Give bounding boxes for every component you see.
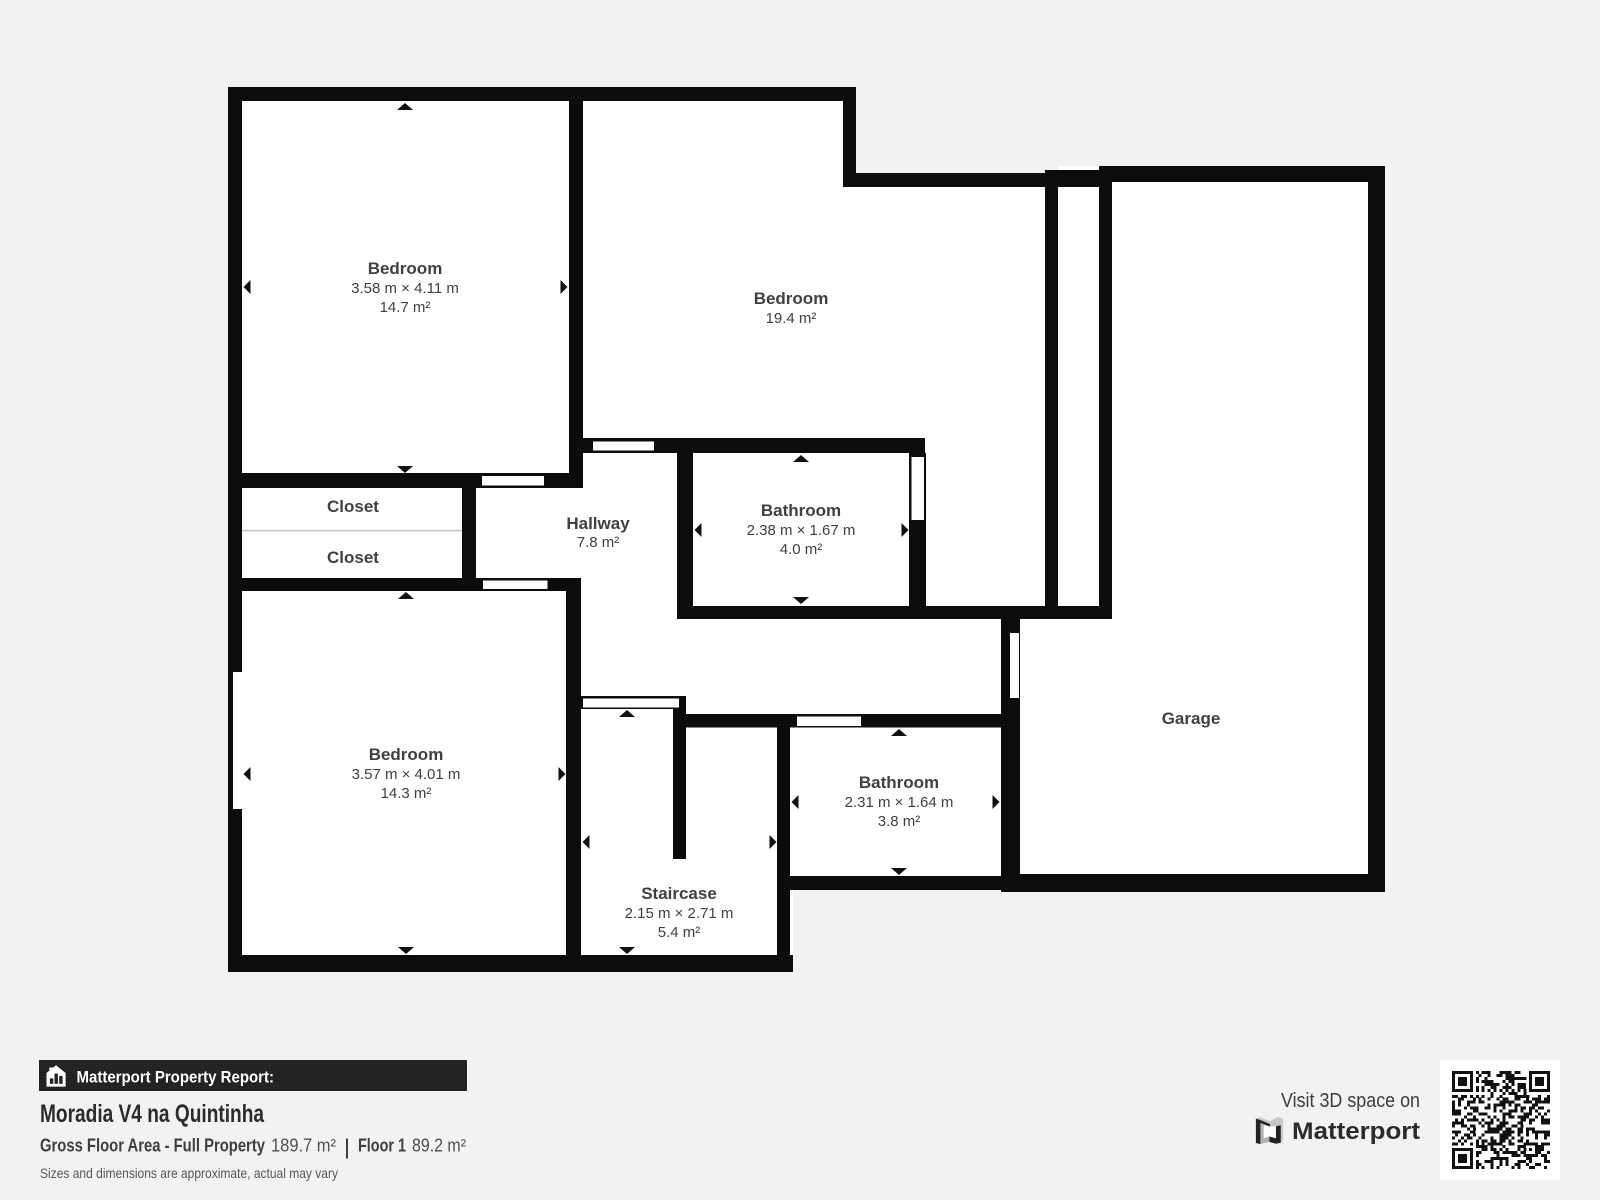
svg-text:3.58 m × 4.11 m: 3.58 m × 4.11 m [351,280,459,297]
svg-text:3.57 m × 4.01 m: 3.57 m × 4.01 m [352,766,461,783]
svg-text:Closet: Closet [327,497,379,516]
svg-text:Bedroom: Bedroom [369,745,444,764]
svg-text:Bathroom: Bathroom [761,501,841,520]
svg-text:Bathroom: Bathroom [859,773,939,792]
svg-text:Bedroom: Bedroom [754,289,829,308]
svg-text:Closet: Closet [327,548,379,567]
svg-text:Moradia V4 na Quintinha: Moradia V4 na Quintinha [40,1100,265,1128]
svg-text:2.38 m × 1.67 m: 2.38 m × 1.67 m [747,522,856,539]
svg-text:Floor 1: Floor 1 [358,1136,406,1156]
svg-text:14.3 m²: 14.3 m² [381,785,432,802]
svg-text:Hallway: Hallway [566,514,630,533]
svg-text:Visit 3D space on: Visit 3D space on [1281,1090,1420,1112]
svg-text:Sizes and dimensions are appro: Sizes and dimensions are approximate, ac… [40,1165,338,1181]
svg-text:3.8 m²: 3.8 m² [878,813,921,830]
svg-text:7.8 m²: 7.8 m² [577,534,620,551]
svg-text:2.15 m × 2.71 m: 2.15 m × 2.71 m [625,905,734,922]
svg-text:14.7 m²: 14.7 m² [380,299,431,316]
svg-text:Matterport Property Report:: Matterport Property Report: [77,1068,275,1087]
svg-text:Bedroom: Bedroom [368,259,443,278]
svg-text:2.31 m × 1.64 m: 2.31 m × 1.64 m [845,794,954,811]
svg-text:Gross Floor Area - Full Proper: Gross Floor Area - Full Property [40,1136,265,1156]
svg-text:Garage: Garage [1162,709,1221,728]
svg-text:19.4 m²: 19.4 m² [766,310,817,327]
svg-text:5.4 m²: 5.4 m² [658,924,701,941]
svg-text:Staircase: Staircase [641,884,717,903]
svg-text:89.2 m²: 89.2 m² [412,1136,466,1156]
svg-text:4.0 m²: 4.0 m² [780,541,823,558]
svg-text:189.7 m²: 189.7 m² [271,1136,336,1156]
svg-text:Matterport: Matterport [1292,1118,1420,1145]
